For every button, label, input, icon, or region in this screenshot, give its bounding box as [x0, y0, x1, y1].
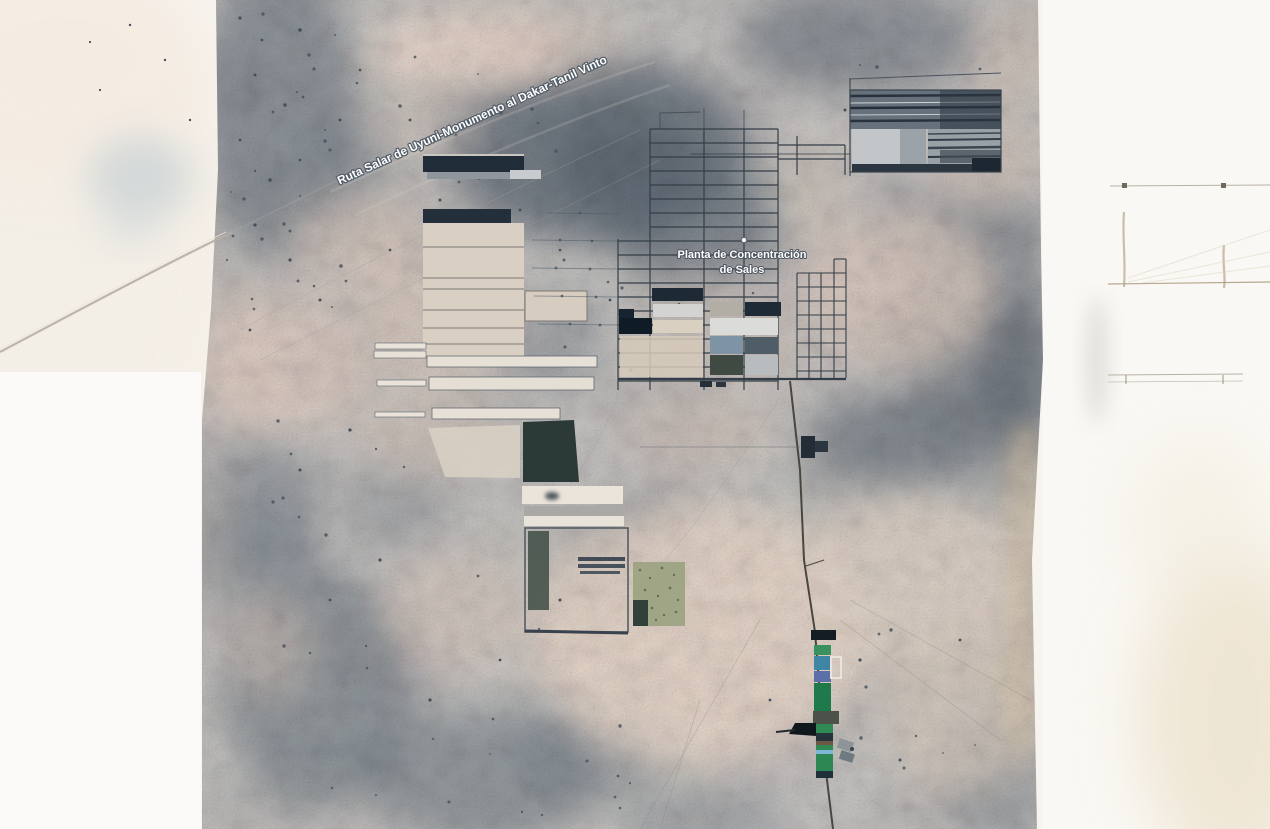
svg-text:Planta de Concentración: Planta de Concentración: [678, 249, 807, 261]
svg-text:de Sales: de Sales: [720, 264, 765, 276]
